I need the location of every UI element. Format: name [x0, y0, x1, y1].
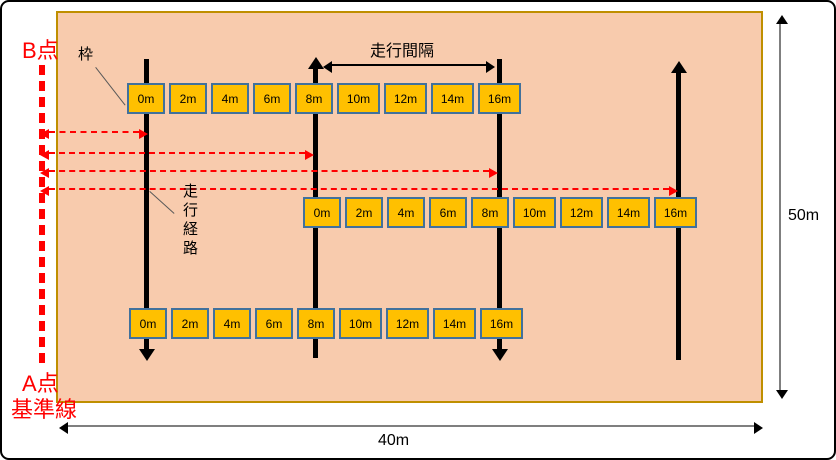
travel-interval-label: 走行間隔: [370, 37, 434, 61]
distance-marker: 10m: [339, 308, 382, 339]
distance-marker: 2m: [171, 308, 209, 339]
arrow-down-icon: [492, 349, 508, 361]
width-dimension-arrow: [68, 425, 754, 427]
distance-marker: 6m: [255, 308, 293, 339]
distance-marker: 0m: [127, 83, 165, 114]
distance-marker: 8m: [471, 197, 509, 228]
distance-marker: 2m: [345, 197, 383, 228]
distance-marker: 6m: [429, 197, 467, 228]
distance-marker: 16m: [654, 197, 697, 228]
distance-marker: 16m: [478, 83, 521, 114]
distance-marker: 8m: [295, 83, 333, 114]
distance-marker: 4m: [213, 308, 251, 339]
baseline-label: 基準線: [11, 392, 77, 424]
offset-arrow-3: [49, 170, 489, 172]
distance-marker: 8m: [297, 308, 335, 339]
travel-interval-arrow: [332, 64, 486, 66]
arrow-down-icon: [139, 349, 155, 361]
height-dimension-label: 50m: [788, 207, 819, 225]
distance-marker: 4m: [211, 83, 249, 114]
travel-route-label: 走行経路: [180, 183, 198, 259]
distance-marker: 4m: [387, 197, 425, 228]
distance-marker: 0m: [129, 308, 167, 339]
marker-row-bottom: 0m2m4m6m8m10m12m14m16m: [129, 308, 523, 339]
distance-marker: 10m: [337, 83, 380, 114]
distance-marker: 12m: [384, 83, 427, 114]
distance-marker: 14m: [433, 308, 476, 339]
marker-row-top: 0m2m4m6m8m10m12m14m16m: [127, 83, 521, 114]
offset-arrow-1: [49, 131, 139, 133]
distance-marker: 12m: [386, 308, 429, 339]
offset-arrow-2: [49, 152, 305, 154]
offset-arrow-4: [49, 188, 669, 190]
distance-marker: 12m: [560, 197, 603, 228]
distance-marker: 16m: [480, 308, 523, 339]
marker-row-middle: 0m2m4m6m8m10m12m14m16m: [303, 197, 697, 228]
point-b-label: B点: [22, 33, 59, 65]
height-dimension-arrow: [779, 24, 781, 390]
diagram-canvas: 0m2m4m6m8m10m12m14m16m 0m2m4m6m8m10m12m1…: [0, 0, 836, 460]
distance-marker: 6m: [253, 83, 291, 114]
distance-marker: 2m: [169, 83, 207, 114]
width-dimension-label: 40m: [378, 432, 409, 450]
reference-baseline: [39, 65, 45, 365]
distance-marker: 14m: [431, 83, 474, 114]
distance-marker: 10m: [513, 197, 556, 228]
distance-marker: 0m: [303, 197, 341, 228]
distance-marker: 14m: [607, 197, 650, 228]
frame-label: 枠: [78, 43, 93, 64]
